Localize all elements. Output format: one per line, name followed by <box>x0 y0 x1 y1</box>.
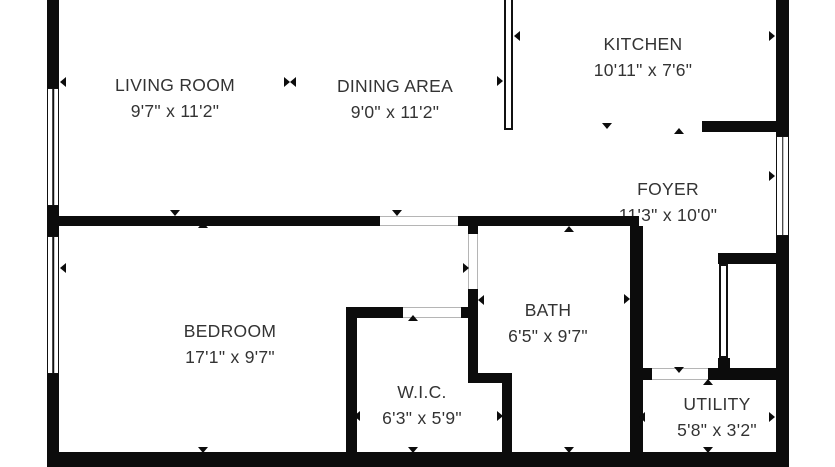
room-dimensions-living-room: 9'7" x 11'2" <box>115 98 235 124</box>
marker-living-dining-left-left-icon <box>290 77 296 87</box>
opening-dining-hall <box>380 216 458 226</box>
wall-kitchen-bottom <box>702 121 776 132</box>
wall-outer-left-upper <box>47 0 59 88</box>
wall-outer-right-upper <box>776 0 789 136</box>
room-label-kitchen: KITCHEN10'11" x 7'6" <box>594 31 693 83</box>
room-label-utility: UTILITY5'8" x 3'2" <box>677 391 757 443</box>
marker-bath-top-up-icon <box>564 226 574 232</box>
marker-wic-bottom-down-icon <box>408 447 418 453</box>
wall-bedroom-top <box>47 216 380 226</box>
wall-bath-left-stub <box>468 226 478 234</box>
marker-kitchen-right-right-icon <box>769 31 775 41</box>
marker-bath-door-right-icon <box>463 263 469 273</box>
door-leaf-foyer-closet <box>719 264 728 358</box>
marker-living-bottom-down-icon <box>170 210 180 216</box>
room-name-foyer: FOYER <box>619 176 718 202</box>
room-label-bath: BATH6'5" x 9'7" <box>508 297 588 349</box>
marker-kitchen-bottom-down-icon <box>602 123 612 129</box>
wall-utility-top-left <box>630 368 652 380</box>
room-dimensions-utility: 5'8" x 3'2" <box>677 417 757 443</box>
room-name-dining-area: DINING AREA <box>337 73 453 99</box>
wall-outer-right-lower <box>776 236 789 467</box>
marker-living-left-left-icon <box>60 77 66 87</box>
floorplan: LIVING ROOM9'7" x 11'2"DINING AREA9'0" x… <box>0 0 835 467</box>
marker-utility-left-left-icon <box>639 412 645 422</box>
room-name-kitchen: KITCHEN <box>594 31 693 57</box>
marker-dining-right-right-icon <box>497 76 503 86</box>
marker-foyer-right-right-icon <box>769 171 775 181</box>
wall-utility-top-right <box>708 368 776 380</box>
wall-wic-right <box>502 383 512 452</box>
room-name-bath: BATH <box>508 297 588 323</box>
room-dimensions-wic: 6'3" x 5'9" <box>382 405 462 431</box>
marker-utility-right-right-icon <box>769 412 775 422</box>
room-name-utility: UTILITY <box>677 391 757 417</box>
marker-bath-bottom-down-icon <box>564 447 574 453</box>
marker-bath-left-left-icon <box>478 295 484 305</box>
room-dimensions-dining-area: 9'0" x 11'2" <box>337 99 453 125</box>
marker-utility-door-top-down-icon <box>674 367 684 373</box>
marker-wic-top-up-icon <box>408 315 418 321</box>
wall-bath-foyer-top <box>458 216 639 226</box>
marker-bath-right-right-icon <box>624 294 630 304</box>
window-foyer-right <box>776 136 789 236</box>
room-label-wic: W.I.C.6'3" x 5'9" <box>382 379 462 431</box>
marker-bedroom-left-left-icon <box>60 263 66 273</box>
marker-utility-door-bottom-up-icon <box>703 379 713 385</box>
room-dimensions-bedroom: 17'1" x 9'7" <box>184 344 277 370</box>
window-bedroom-left <box>47 236 59 374</box>
room-label-living-room: LIVING ROOM9'7" x 11'2" <box>115 72 235 124</box>
marker-utility-bottom-down-icon <box>703 447 713 453</box>
marker-foyer-top-up-icon <box>674 128 684 134</box>
wall-outer-bottom <box>47 452 788 467</box>
room-label-dining-area: DINING AREA9'0" x 11'2" <box>337 73 453 125</box>
marker-kitchen-left-left-icon <box>514 31 520 41</box>
wall-wic-top-joint <box>461 307 478 318</box>
wall-bath-left <box>468 289 478 375</box>
wall-wic-left <box>346 307 357 452</box>
room-name-bedroom: BEDROOM <box>184 318 277 344</box>
marker-bedroom-top-up-icon <box>198 222 208 228</box>
door-leaf-kitchen-dining <box>504 0 513 130</box>
window-living-left <box>47 88 59 206</box>
room-dimensions-bath: 6'5" x 9'7" <box>508 323 588 349</box>
room-dimensions-kitchen: 10'11" x 7'6" <box>594 57 693 83</box>
room-label-bedroom: BEDROOM17'1" x 9'7" <box>184 318 277 370</box>
wall-bath-bottom-jog <box>468 373 512 383</box>
wall-closet-top <box>718 253 776 264</box>
marker-wic-left-left-icon <box>354 411 360 421</box>
marker-bedroom-bottom-down-icon <box>198 447 208 453</box>
opening-bath-door <box>468 234 478 289</box>
room-name-wic: W.I.C. <box>382 379 462 405</box>
marker-wic-right-right-icon <box>497 411 503 421</box>
room-name-living-room: LIVING ROOM <box>115 72 235 98</box>
marker-dining-bottom-down-icon <box>392 210 402 216</box>
